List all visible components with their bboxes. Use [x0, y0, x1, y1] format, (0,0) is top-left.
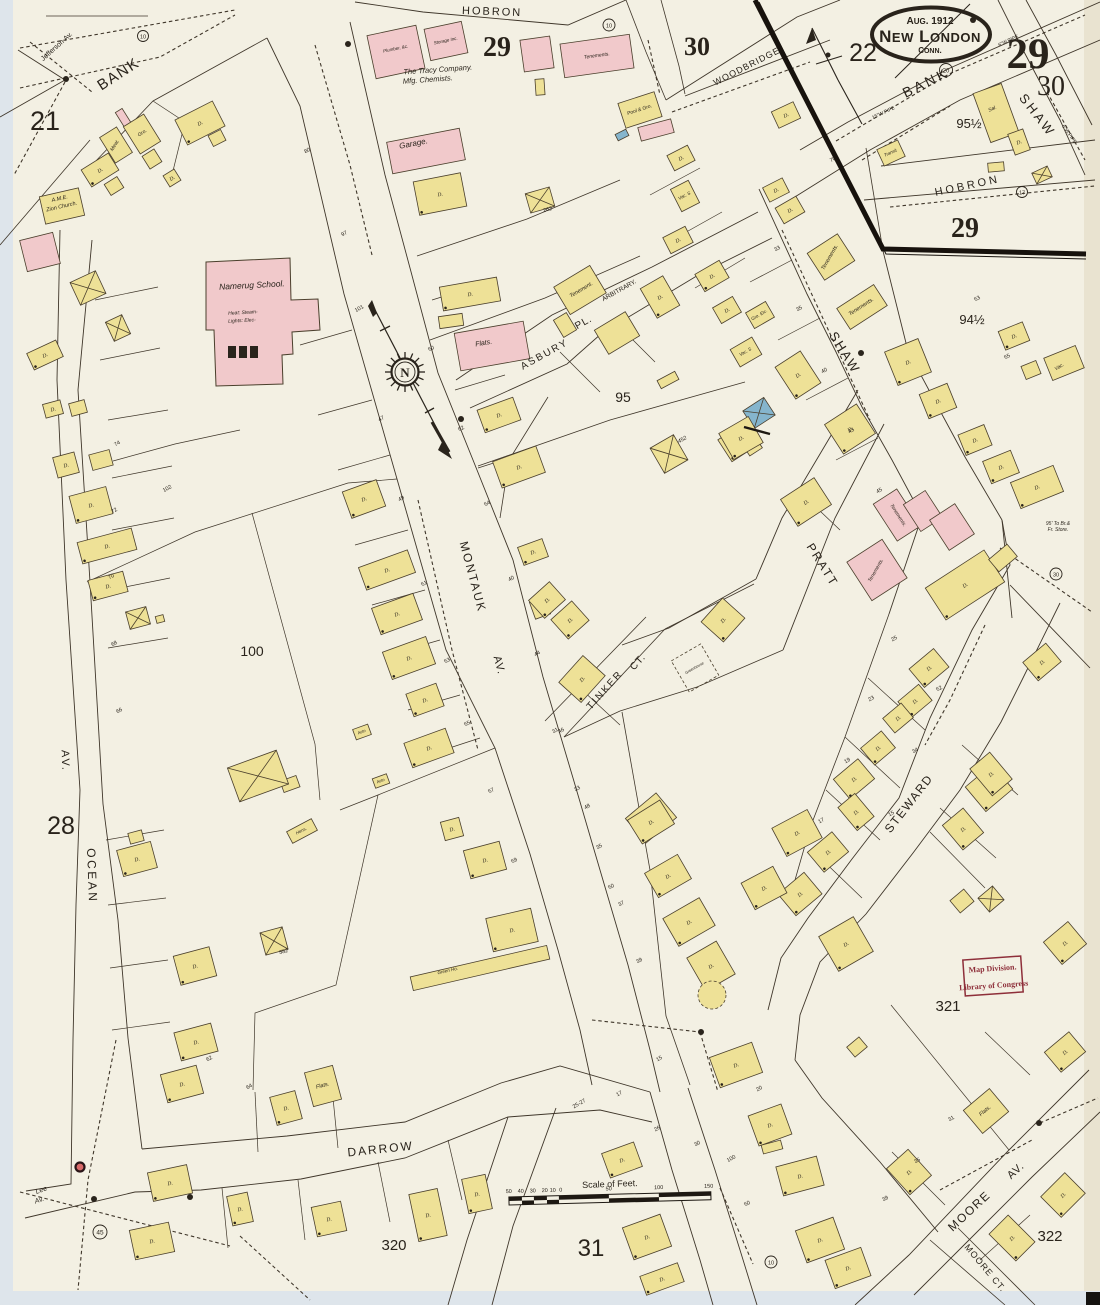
svg-text:CONN.: CONN.	[918, 46, 942, 55]
svg-text:50: 50	[606, 1186, 612, 1192]
svg-text:28: 28	[47, 812, 75, 840]
svg-text:10: 10	[550, 1188, 556, 1194]
svg-text:20: 20	[542, 1188, 548, 1194]
svg-text:HOBRON: HOBRON	[462, 5, 523, 19]
svg-text:10: 10	[606, 24, 612, 30]
svg-text:10: 10	[140, 35, 146, 41]
svg-text:Fr. Store.: Fr. Store.	[1048, 527, 1069, 533]
svg-text:31: 31	[578, 1235, 605, 1262]
svg-text:95½: 95½	[956, 116, 981, 131]
svg-text:30: 30	[684, 32, 710, 61]
svg-text:D.: D.	[466, 292, 473, 299]
svg-text:30: 30	[1053, 573, 1059, 579]
svg-text:21: 21	[30, 106, 60, 136]
svg-text:29: 29	[951, 213, 979, 244]
svg-text:17: 17	[1019, 191, 1025, 197]
svg-text:100: 100	[654, 1185, 663, 1191]
svg-text:N: N	[400, 365, 410, 380]
svg-text:10: 10	[768, 1261, 774, 1267]
svg-text:0: 0	[559, 1188, 562, 1194]
svg-text:322: 322	[1037, 1228, 1062, 1245]
svg-text:NEW LONDON: NEW LONDON	[879, 27, 981, 46]
svg-text:29: 29	[483, 32, 511, 63]
svg-text:20: 20	[943, 69, 950, 75]
svg-text:100: 100	[240, 643, 264, 659]
svg-text:94½: 94½	[959, 312, 984, 327]
svg-text:30: 30	[530, 1188, 536, 1194]
svg-text:30: 30	[1037, 71, 1065, 102]
svg-text:AUG. 1912: AUG. 1912	[906, 16, 953, 27]
svg-text:150: 150	[704, 1184, 713, 1190]
svg-text:95: 95	[615, 389, 631, 405]
svg-text:D.: D.	[436, 192, 443, 199]
svg-text:50: 50	[506, 1189, 512, 1195]
svg-text:OCEAN: OCEAN	[84, 848, 100, 904]
svg-text:40: 40	[518, 1189, 524, 1195]
svg-text:45: 45	[96, 1230, 104, 1237]
svg-text:320: 320	[381, 1237, 406, 1254]
svg-text:321: 321	[935, 998, 960, 1015]
svg-text:AV.: AV.	[59, 750, 72, 772]
